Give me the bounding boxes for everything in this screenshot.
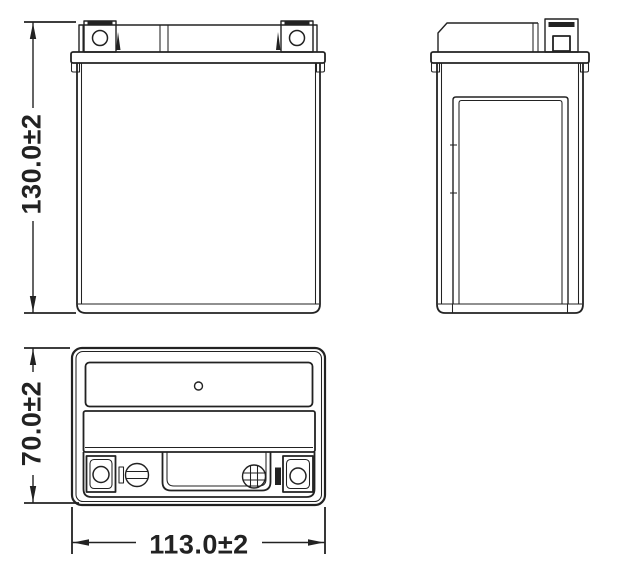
arrow-down-icon xyxy=(30,486,36,502)
front-lid-flange xyxy=(71,52,325,63)
arrow-down-icon xyxy=(30,296,36,312)
arrow-up-icon xyxy=(30,23,36,39)
top-center-plateau-inner xyxy=(167,452,266,486)
top-center-plateau-outer xyxy=(163,452,271,491)
side-flange-right-tab xyxy=(581,63,589,72)
front-flange-left-tab xyxy=(72,63,80,72)
minus-screw-icon xyxy=(126,464,149,487)
top-vent-hole xyxy=(195,382,203,390)
battery-technical-drawing: 130.0±2 70.0±2 113.0±2 xyxy=(0,0,623,580)
depth-dimension-label: 70.0±2 xyxy=(17,381,47,466)
top-negative-marker-bar xyxy=(119,467,124,483)
top-label-panel xyxy=(86,363,313,407)
side-terminal-bolt-slot xyxy=(553,36,570,51)
front-right-terminal-top-bar xyxy=(285,21,310,26)
side-terminal xyxy=(545,19,578,52)
side-view xyxy=(431,19,589,313)
plus-screw-head xyxy=(243,465,266,488)
side-lid-flange xyxy=(431,52,589,63)
top-positive-terminal-bolt-hole xyxy=(290,468,306,484)
plus-screw-icon xyxy=(243,465,266,488)
top-inner-case-border xyxy=(76,352,322,502)
arrow-left-icon xyxy=(73,539,89,545)
top-middle-band xyxy=(84,411,316,452)
side-flange-left-tab xyxy=(432,63,440,72)
width-dimension-label: 113.0±2 xyxy=(149,530,248,560)
side-recessed-panel-outer xyxy=(453,97,568,304)
top-view xyxy=(72,348,325,505)
top-positive-marker-bar xyxy=(275,468,281,486)
front-right-mold-mark xyxy=(276,32,281,50)
front-right-terminal-bolt-hole xyxy=(290,31,305,46)
depth-dimension: 70.0±2 xyxy=(17,348,80,503)
arrow-right-icon xyxy=(308,539,324,545)
width-dimension: 113.0±2 xyxy=(72,507,325,560)
front-view xyxy=(71,21,325,313)
side-recessed-panel-inner xyxy=(459,101,562,305)
top-negative-terminal xyxy=(87,456,149,492)
front-left-terminal-bolt-hole xyxy=(93,31,108,46)
height-dimension-label: 130.0±2 xyxy=(17,114,47,215)
side-terminal-top-bar xyxy=(549,22,575,27)
top-positive-terminal xyxy=(243,456,314,492)
top-negative-terminal-bolt-hole xyxy=(93,467,109,483)
side-cover-outline xyxy=(438,23,538,52)
height-dimension: 130.0±2 xyxy=(17,22,77,313)
front-body-outline xyxy=(77,63,320,313)
top-outer-case xyxy=(72,348,325,505)
arrow-up-icon xyxy=(30,349,36,365)
minus-screw-head xyxy=(126,464,149,487)
front-left-terminal-top-bar xyxy=(88,21,113,26)
